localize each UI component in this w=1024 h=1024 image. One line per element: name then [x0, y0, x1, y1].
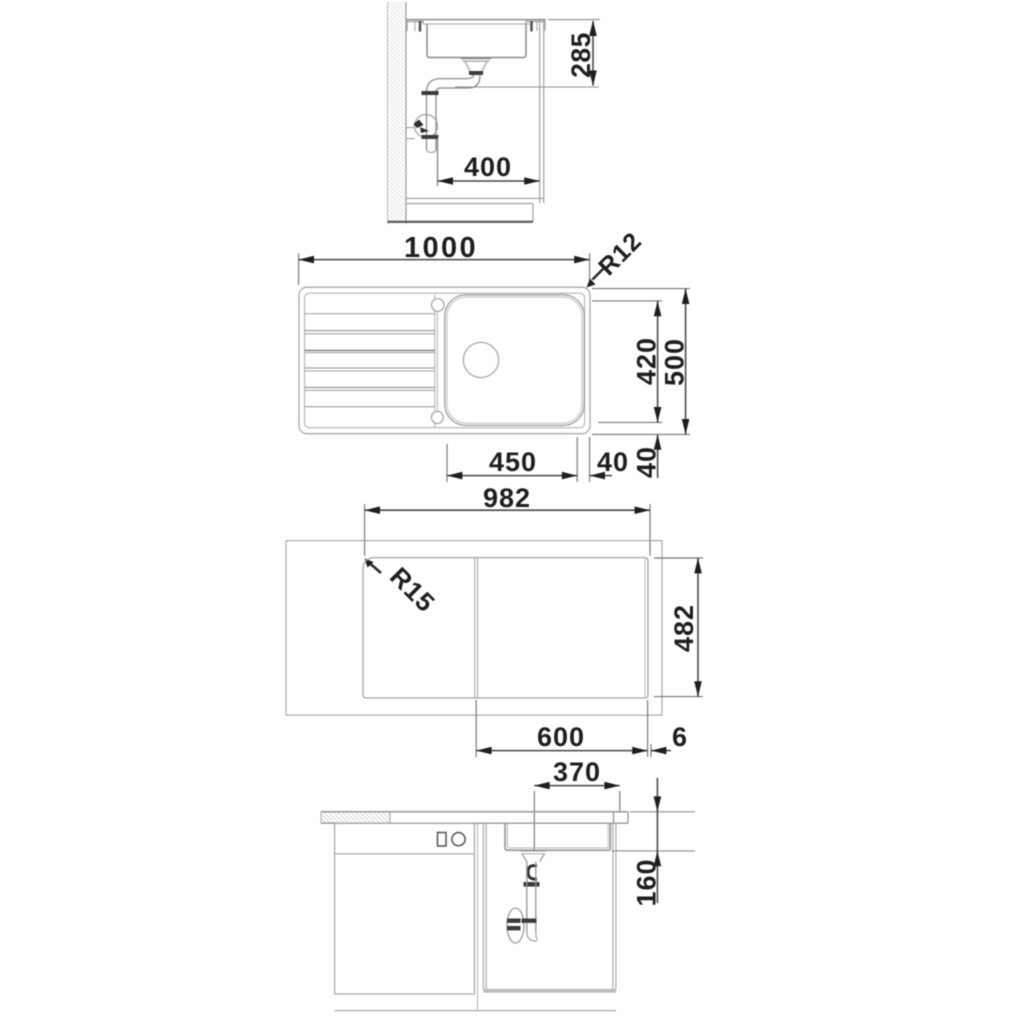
svg-text:370: 370 — [553, 757, 601, 787]
svg-text:420: 420 — [632, 337, 662, 385]
svg-text:400: 400 — [464, 152, 512, 182]
svg-text:500: 500 — [660, 338, 690, 386]
svg-text:6: 6 — [672, 722, 688, 752]
svg-text:450: 450 — [489, 447, 537, 477]
svg-text:482: 482 — [669, 604, 699, 652]
svg-text:1000: 1000 — [404, 232, 478, 264]
svg-text:285: 285 — [566, 32, 596, 78]
svg-text:40: 40 — [597, 447, 629, 477]
svg-text:600: 600 — [537, 722, 585, 752]
svg-text:982: 982 — [483, 483, 531, 513]
svg-text:40: 40 — [632, 446, 662, 478]
svg-text:160: 160 — [632, 858, 662, 906]
